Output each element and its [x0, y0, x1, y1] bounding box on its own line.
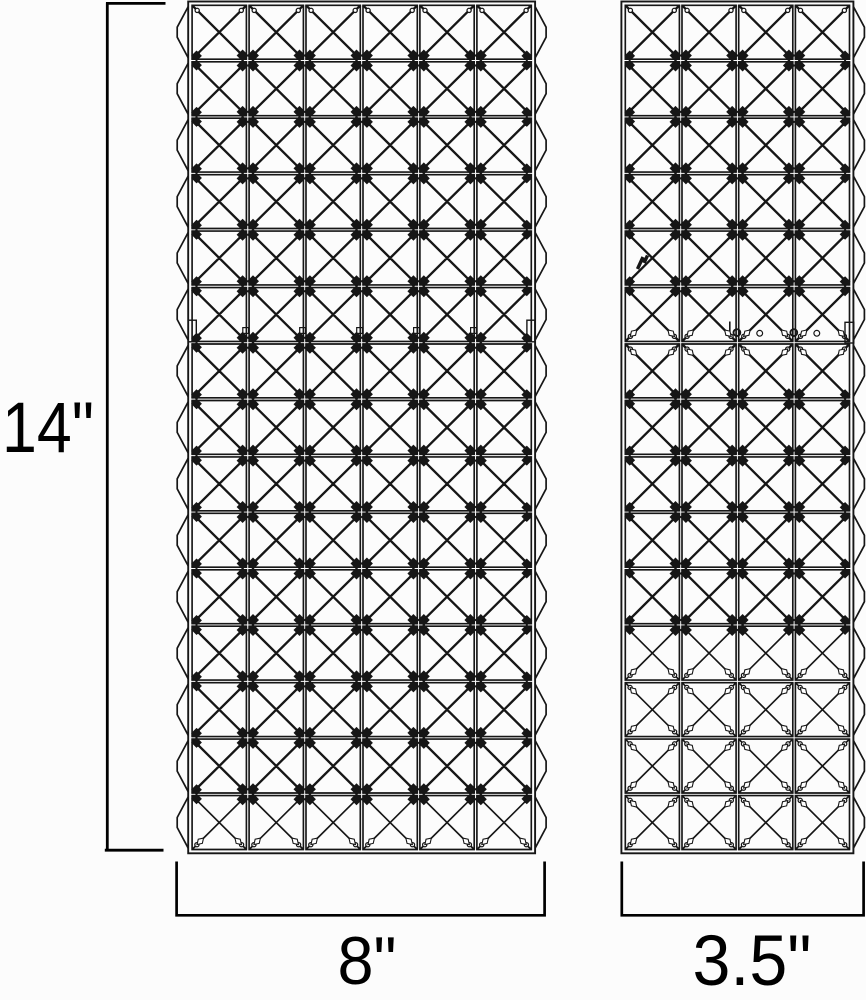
- svg-text:14": 14": [2, 389, 94, 468]
- svg-text:8": 8": [338, 923, 397, 999]
- svg-text:3.5": 3.5": [693, 922, 812, 1000]
